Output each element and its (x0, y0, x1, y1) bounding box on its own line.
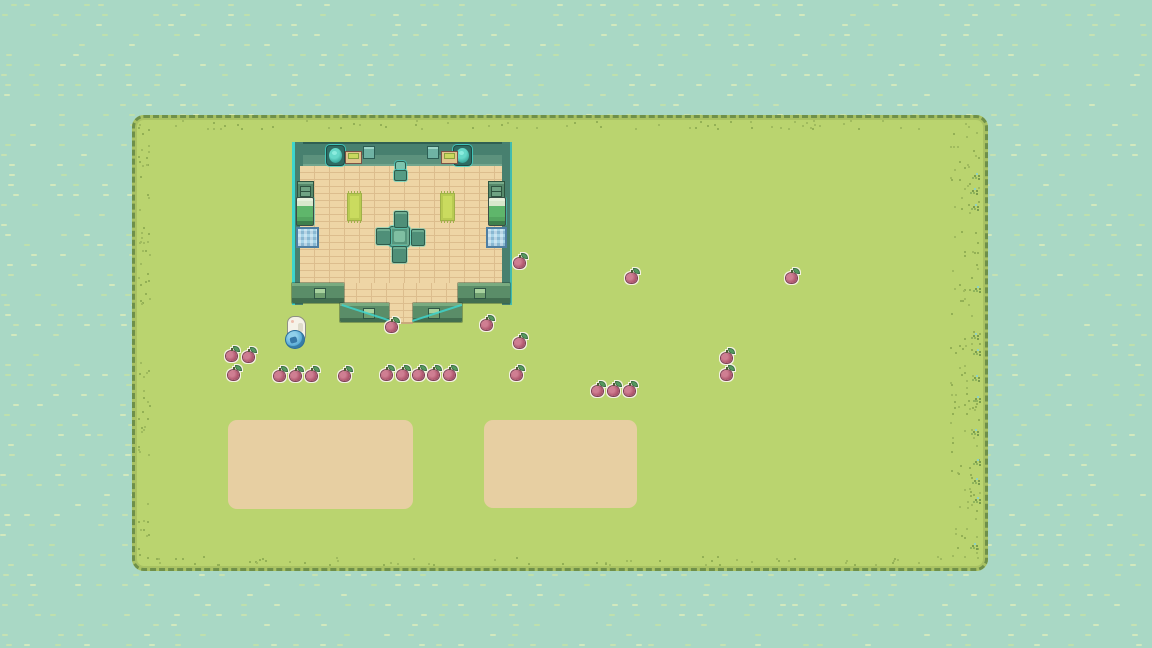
player-orb (285, 330, 305, 349)
grass-tuft (975, 398, 977, 400)
grass-tuft (974, 377, 976, 379)
building-door-path[interactable] (389, 283, 413, 324)
grass-tuft (972, 545, 974, 547)
background-texture (0, 0, 6, 2)
bed (296, 197, 314, 226)
table (389, 226, 410, 247)
apple-item[interactable] (511, 370, 522, 380)
game-world[interactable] (0, 0, 1152, 648)
apple-item[interactable] (514, 338, 525, 348)
plant-pot (327, 146, 344, 165)
apple-item[interactable] (624, 386, 635, 396)
apple-item[interactable] (786, 273, 797, 283)
grass-tuft (975, 351, 977, 353)
dirt-patch[interactable] (484, 420, 637, 508)
building-bottom-wall-left (292, 283, 344, 303)
grass-speckles (132, 115, 134, 117)
grass-tuft (973, 206, 975, 208)
grass-tuft (972, 190, 974, 192)
apple-item[interactable] (592, 386, 603, 396)
apple-item[interactable] (413, 370, 424, 380)
apple-item[interactable] (290, 371, 301, 381)
wall-box (427, 146, 439, 159)
chair (394, 211, 408, 228)
apple-item[interactable] (626, 273, 637, 283)
blue-mat (296, 227, 319, 248)
building-bottom-wall-right (458, 283, 510, 303)
wall-box (363, 146, 375, 159)
apple-item[interactable] (339, 371, 350, 381)
grass-tuft (974, 175, 976, 177)
player-character[interactable] (285, 316, 307, 348)
blue-mat (486, 227, 507, 248)
apple-item[interactable] (274, 371, 285, 381)
apple-item[interactable] (381, 370, 392, 380)
apple-item[interactable] (608, 386, 619, 396)
grass-tuft (973, 335, 975, 337)
apple-item[interactable] (243, 352, 254, 362)
apple-item[interactable] (228, 370, 239, 380)
npc-character[interactable] (393, 161, 406, 181)
grass-tuft (973, 431, 975, 433)
apple-item[interactable] (226, 351, 237, 361)
rug (347, 193, 362, 221)
apple-item[interactable] (386, 322, 397, 332)
apple-item[interactable] (428, 370, 439, 380)
apple-item[interactable] (306, 371, 317, 381)
apple-item[interactable] (397, 370, 408, 380)
grass-tuft (974, 480, 976, 482)
apple-item[interactable] (481, 320, 492, 330)
apple-item[interactable] (514, 258, 525, 268)
grass-tuft (975, 499, 977, 501)
dirt-patch[interactable] (228, 420, 413, 509)
tray-table (345, 151, 362, 164)
apple-item[interactable] (721, 370, 732, 380)
grass-tuft (975, 288, 977, 290)
grass-tuft (975, 461, 977, 463)
chair (411, 229, 425, 246)
chair (392, 246, 407, 263)
tray-table (441, 151, 458, 164)
bed (488, 197, 506, 226)
apple-item[interactable] (721, 353, 732, 363)
chair (376, 228, 391, 245)
apple-item[interactable] (444, 370, 455, 380)
rug (440, 193, 455, 221)
